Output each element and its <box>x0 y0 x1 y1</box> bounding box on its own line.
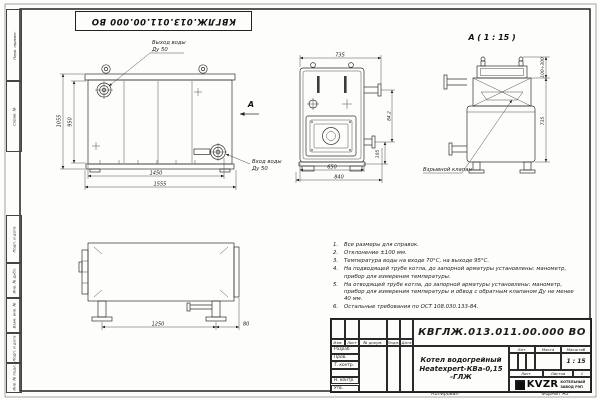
top-doc-number-box: КВГЛЖ.013.011.00.000 ВО <box>75 11 252 31</box>
tb-scale-value: 1 : 15 <box>561 353 591 370</box>
tb-docnum-col <box>359 346 387 392</box>
tb-product-name: Котел водогрейный Heatexpert-КВа-0,15 -Г… <box>413 346 509 392</box>
stamp-vzam-inv: Взам. инв. № <box>6 297 22 334</box>
dim-1555: 1555 <box>154 182 167 188</box>
stamp-inv-dubl: Инв. № дубл. <box>6 262 22 299</box>
dim-650: 650 <box>327 165 337 171</box>
tb-lit-cell-3 <box>526 353 535 370</box>
front-view-dimensions: 950 1055 1450 1555 <box>57 74 237 190</box>
tb-row-blank <box>331 369 359 377</box>
copied-label: Копировал <box>405 392 485 397</box>
notes-block: 1.Все размеры для справок. 2.Отклонение … <box>333 242 576 312</box>
tb-lit-label: Лит. <box>509 346 535 353</box>
detail-view-dimensions: 100÷300 735 Взрывной клапан <box>423 57 550 173</box>
inlet-dn-label: Ду 50 <box>251 166 268 172</box>
stamp-inv-podl: Инв. № подл. <box>6 362 22 393</box>
dim-735-detail: 735 <box>540 117 546 126</box>
kvzr-logo-icon <box>515 380 525 390</box>
tb-rev-col1 <box>331 319 345 339</box>
note-4: 4.На подводящей трубе котла, до запорной… <box>333 266 576 280</box>
section-arrow-letter: А <box>247 100 254 109</box>
note-6: 6.Остальные требования по ОСТ 108.030.13… <box>333 304 576 311</box>
side-view <box>299 63 381 171</box>
company-name: КОТЕЛЬНЫЙ ЗАВОД РЭП <box>560 380 585 388</box>
outlet-water-label: Выход воды <box>152 40 186 46</box>
tb-rev-col2 <box>345 319 359 339</box>
tb-col-date: Дата <box>400 339 413 346</box>
kvzr-logo-text: KVZR <box>527 379 559 390</box>
dim-105: 105 <box>375 150 381 159</box>
explosion-valve-label: Взрывной клапан <box>423 167 472 173</box>
detail-view-a: А ( 1 : 15 ) <box>444 33 535 173</box>
dim-80: 80 <box>243 322 249 328</box>
tb-rev-col5 <box>400 319 413 339</box>
dim-950: 950 <box>68 117 74 127</box>
side-view-dimensions: 735 650 840 84.2 105 <box>296 53 395 184</box>
dim-1055: 1055 <box>57 115 63 128</box>
top-doc-number: КВГЛЖ.013.011.00.000 ВО <box>91 16 236 26</box>
format-label: Формат А3 <box>520 392 590 397</box>
title-block: Изм. Лист № докум. Подп. Дата Разраб. Пр… <box>330 318 592 393</box>
dim-valve-range: 100÷300 <box>540 57 546 78</box>
stamp-podp-data-2: Подп. и дата <box>6 332 22 364</box>
inlet-water-label: Вход воды <box>252 159 282 165</box>
tb-rev-col4 <box>387 319 400 339</box>
tb-date-col <box>400 346 413 392</box>
tb-col-sign: Подп. <box>387 339 400 346</box>
tb-company: KVZR КОТЕЛЬНЫЙ ЗАВОД РЭП <box>509 377 591 392</box>
drawing-sheet: 950 1055 1450 1555 Выход воды Ду 50 Вход… <box>0 0 600 400</box>
outlet-dn-label: Ду 50 <box>151 47 168 53</box>
tb-row-checked: Пров. <box>331 354 359 362</box>
tb-doc-number: КВГЛЖ.013.011.00.000 ВО <box>413 319 591 346</box>
tb-mass-value <box>535 353 561 370</box>
tb-lit-cell-1 <box>509 353 518 370</box>
tb-scale-label: Масштаб <box>561 346 591 353</box>
tb-sheets-value: 1 <box>573 370 591 377</box>
stamp-podp-data-1: Подп. и дата <box>6 215 22 264</box>
dim-840: 840 <box>334 175 344 181</box>
dim-1450: 1450 <box>150 171 163 177</box>
tb-mass-label: Масса <box>535 346 561 353</box>
dim-1250: 1250 <box>152 322 165 328</box>
tb-col-doc: № докум. <box>359 339 387 346</box>
tb-row-ncontrol: Н. контр. <box>331 377 359 385</box>
front-view-labels: Выход воды Ду 50 Вход воды Ду 50 А <box>109 40 282 172</box>
tb-col-izm: Изм. <box>331 339 345 346</box>
stamp-sprav-no: Справ. № <box>6 80 22 152</box>
tb-col-list: Лист <box>345 339 359 346</box>
front-view <box>85 65 235 172</box>
note-3: 3.Температура воды на входе 70°С, на вых… <box>333 258 576 265</box>
tb-sign-col <box>387 346 400 392</box>
tb-row-developed: Разраб. <box>331 346 359 354</box>
tb-rev-col3 <box>359 319 387 339</box>
bottom-view-dimensions: 1250 80 <box>102 298 249 330</box>
tb-row-approved: Утв. <box>331 385 359 393</box>
tb-lit-cell-2 <box>518 353 527 370</box>
dim-735-side: 735 <box>335 53 345 59</box>
note-5: 5.На отводящей трубе котла, до запорной … <box>333 282 576 303</box>
tb-sheets-label: Листов <box>543 370 573 377</box>
dim-84-2: 84.2 <box>387 111 393 121</box>
tb-sheet-label: Лист <box>509 370 543 377</box>
bottom-view <box>79 243 239 321</box>
tb-row-tcontrol: Т. контр. <box>331 361 359 369</box>
stamp-perv-primen: Перв. примен. <box>6 9 22 82</box>
note-1: 1.Все размеры для справок. <box>333 242 576 249</box>
detail-title: А ( 1 : 15 ) <box>467 33 515 42</box>
note-2: 2.Отклонение ±100 мм. <box>333 250 576 257</box>
